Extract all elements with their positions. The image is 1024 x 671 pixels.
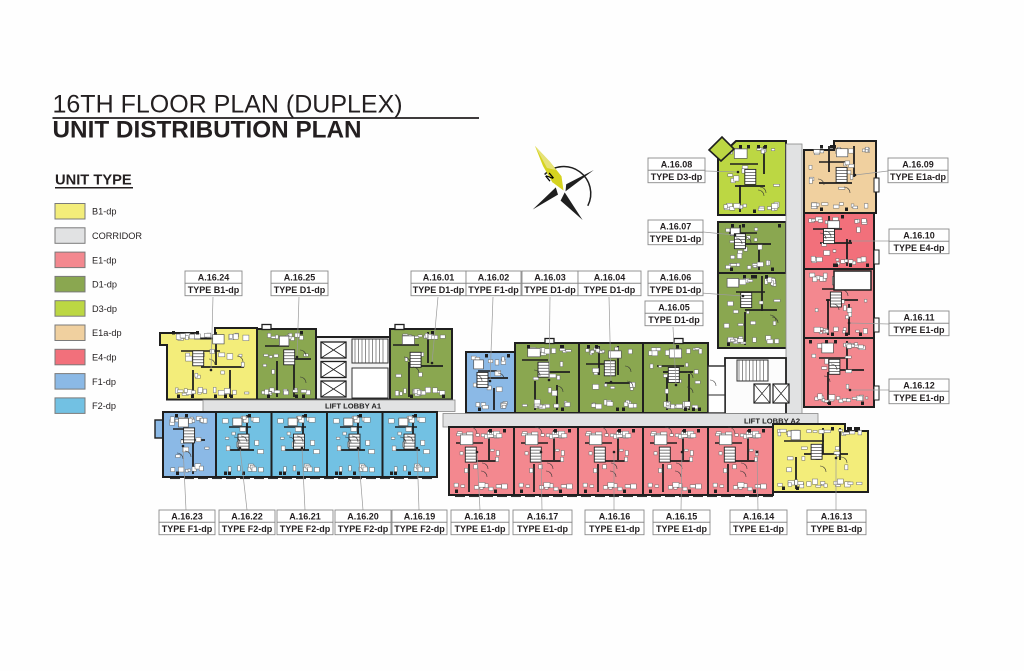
- svg-text:TYPE D1-dp: TYPE D1-dp: [413, 285, 465, 295]
- svg-text:A.16.18: A.16.18: [464, 512, 496, 522]
- svg-text:TYPE E4-dp: TYPE E4-dp: [893, 243, 945, 253]
- svg-text:TYPE E1-dp: TYPE E1-dp: [517, 524, 569, 534]
- svg-text:A.16.20: A.16.20: [347, 512, 379, 522]
- svg-text:TYPE B1-dp: TYPE B1-dp: [188, 285, 240, 295]
- svg-text:A.16.17: A.16.17: [527, 512, 559, 522]
- svg-text:A.16.02: A.16.02: [478, 273, 510, 283]
- svg-text:TYPE E1-dp: TYPE E1-dp: [893, 325, 945, 335]
- svg-text:TYPE F1-dp: TYPE F1-dp: [468, 285, 519, 295]
- svg-text:A.16.11: A.16.11: [903, 313, 934, 323]
- svg-text:A.16.22: A.16.22: [231, 512, 263, 522]
- svg-text:TYPE D3-dp: TYPE D3-dp: [651, 172, 703, 182]
- svg-text:A.16.04: A.16.04: [594, 273, 626, 283]
- svg-text:A.16.08: A.16.08: [661, 160, 693, 170]
- svg-text:A.16.01: A.16.01: [423, 273, 455, 283]
- svg-text:TYPE D1-dp: TYPE D1-dp: [584, 285, 636, 295]
- svg-text:TYPE E1-dp: TYPE E1-dp: [733, 524, 785, 534]
- svg-text:CORRIDOR: CORRIDOR: [92, 231, 142, 241]
- svg-text:A.16.25: A.16.25: [284, 273, 316, 283]
- svg-text:TYPE D1-dp: TYPE D1-dp: [650, 234, 702, 244]
- svg-text:A.16.19: A.16.19: [404, 512, 436, 522]
- svg-text:A.16.14: A.16.14: [743, 512, 775, 522]
- svg-text:A.16.13: A.16.13: [821, 512, 853, 522]
- svg-text:A.16.24: A.16.24: [198, 273, 230, 283]
- svg-text:A.16.21: A.16.21: [289, 512, 321, 522]
- svg-text:TYPE F1-dp: TYPE F1-dp: [162, 524, 213, 534]
- svg-text:TYPE E1-dp: TYPE E1-dp: [454, 524, 506, 534]
- svg-text:TYPE D1-dp: TYPE D1-dp: [524, 285, 576, 295]
- svg-text:TYPE D1-dp: TYPE D1-dp: [648, 315, 700, 325]
- svg-text:TYPE E1a-dp: TYPE E1a-dp: [890, 172, 947, 182]
- svg-text:E1-dp: E1-dp: [92, 255, 117, 265]
- svg-text:LIFT LOBBY A1: LIFT LOBBY A1: [325, 402, 382, 411]
- svg-text:TYPE D1-dp: TYPE D1-dp: [650, 285, 702, 295]
- svg-text:A.16.16: A.16.16: [599, 512, 631, 522]
- svg-text:A.16.15: A.16.15: [666, 512, 698, 522]
- svg-text:E1a-dp: E1a-dp: [92, 328, 122, 338]
- svg-text:TYPE D1-dp: TYPE D1-dp: [274, 285, 326, 295]
- svg-text:A.16.03: A.16.03: [534, 273, 566, 283]
- svg-text:A.16.12: A.16.12: [903, 381, 935, 391]
- svg-text:TYPE E1-dp: TYPE E1-dp: [656, 524, 708, 534]
- svg-text:TYPE F2-dp: TYPE F2-dp: [394, 524, 445, 534]
- svg-text:A.16.23: A.16.23: [171, 512, 203, 522]
- svg-text:TYPE F2-dp: TYPE F2-dp: [280, 524, 331, 534]
- svg-text:UNIT DISTRIBUTION PLAN: UNIT DISTRIBUTION PLAN: [53, 117, 362, 144]
- svg-text:TYPE E1-dp: TYPE E1-dp: [589, 524, 641, 534]
- svg-text:B1-dp: B1-dp: [92, 207, 117, 217]
- svg-text:A.16.09: A.16.09: [902, 160, 934, 170]
- svg-text:A.16.10: A.16.10: [903, 231, 935, 241]
- svg-text:E4-dp: E4-dp: [92, 353, 117, 363]
- svg-text:A.16.06: A.16.06: [660, 273, 692, 283]
- svg-text:TYPE F2-dp: TYPE F2-dp: [338, 524, 389, 534]
- svg-text:A.16.07: A.16.07: [660, 222, 692, 232]
- svg-text:F2-dp: F2-dp: [92, 401, 116, 411]
- svg-text:16TH FLOOR PLAN (DUPLEX): 16TH FLOOR PLAN (DUPLEX): [53, 91, 403, 119]
- svg-text:A.16.05: A.16.05: [658, 303, 690, 313]
- svg-text:TYPE B1-dp: TYPE B1-dp: [811, 524, 863, 534]
- svg-text:TYPE E1-dp: TYPE E1-dp: [893, 393, 945, 403]
- svg-text:D3-dp: D3-dp: [92, 304, 117, 314]
- svg-text:D1-dp: D1-dp: [92, 280, 117, 290]
- svg-text:F1-dp: F1-dp: [92, 377, 116, 387]
- svg-text:UNIT TYPE: UNIT TYPE: [55, 173, 132, 189]
- svg-text:TYPE F2-dp: TYPE F2-dp: [222, 524, 273, 534]
